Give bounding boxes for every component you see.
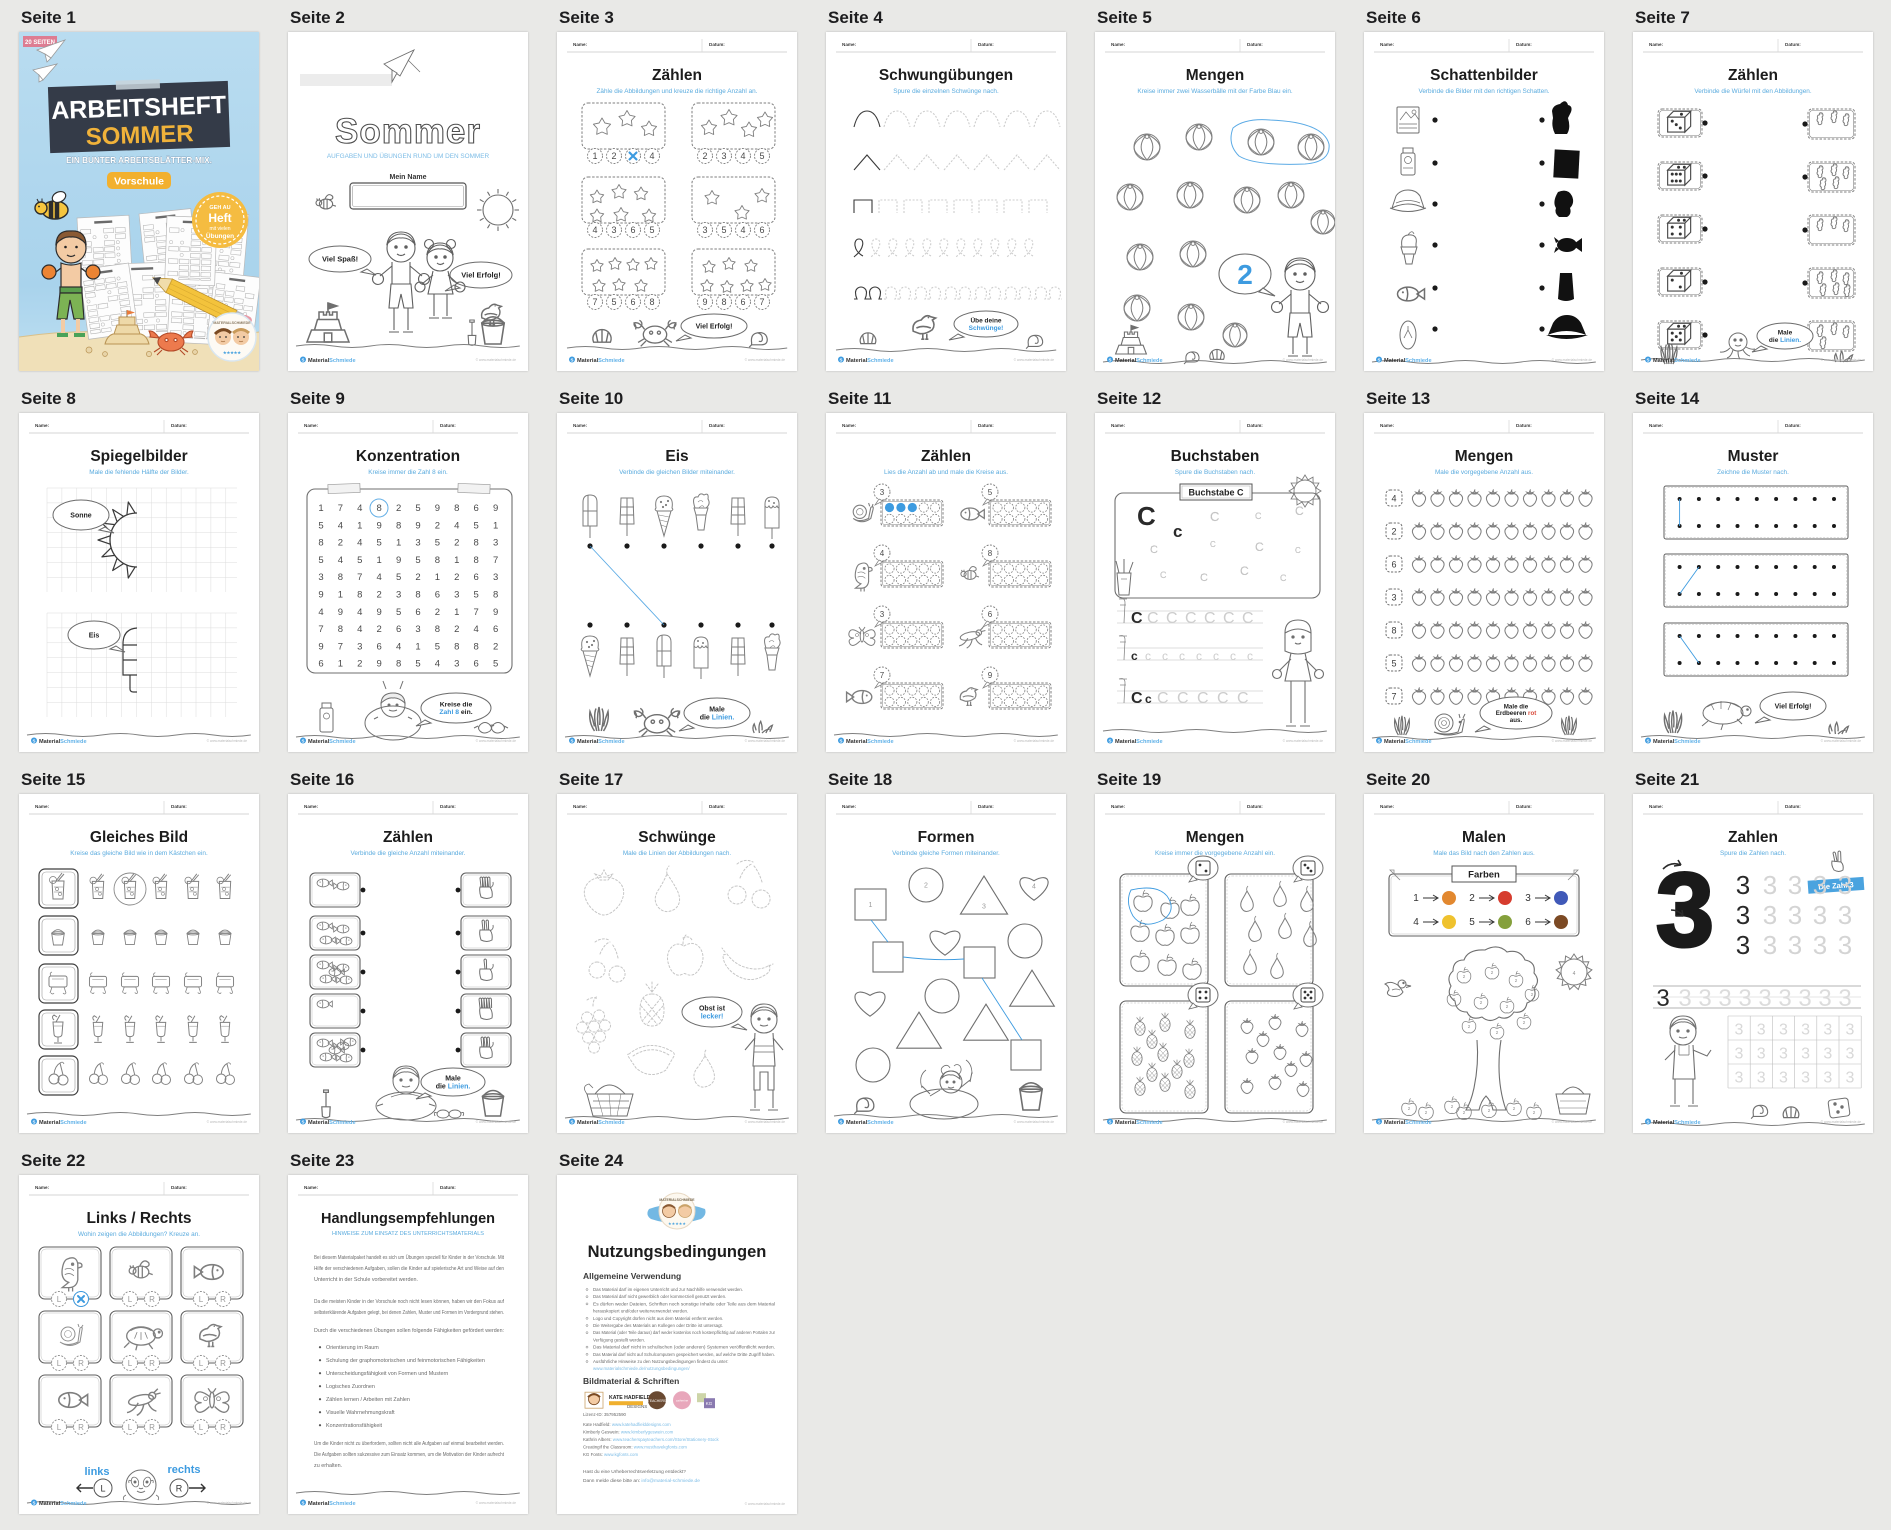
svg-text:2: 2: [357, 659, 362, 670]
svg-text:3: 3: [702, 225, 707, 235]
svg-text:Ausführliche Hinweise zu den N: Ausführliche Hinweise zu den Nutzungsbed…: [593, 1359, 728, 1364]
svg-text:1: 1: [338, 590, 343, 601]
svg-text:Das Material darf im eigenen U: Das Material darf im eigenen Unterricht …: [593, 1287, 743, 1292]
svg-text:8: 8: [338, 572, 343, 583]
svg-text:2: 2: [1531, 992, 1534, 997]
svg-text:© www.materialschmiede.de: © www.materialschmiede.de: [1014, 358, 1054, 362]
svg-text:S: S: [570, 1120, 573, 1125]
svg-text:Viel Erfolg!: Viel Erfolg!: [1775, 703, 1812, 710]
svg-text:KG: KG: [706, 1401, 713, 1406]
svg-text:4: 4: [338, 555, 343, 566]
svg-text:5: 5: [415, 659, 420, 670]
svg-text:3: 3: [1736, 870, 1750, 900]
svg-text:3: 3: [1698, 985, 1711, 1012]
svg-text:5: 5: [474, 590, 479, 601]
svg-text:Datum:: Datum:: [1516, 423, 1532, 428]
svg-text:7: 7: [338, 503, 343, 514]
svg-text:L: L: [199, 1423, 204, 1432]
svg-text:Spure die Zahlen nach.: Spure die Zahlen nach.: [1720, 850, 1786, 857]
svg-text:Verbinde gleiche Formen mitein: Verbinde gleiche Formen miteinander.: [892, 850, 1000, 857]
svg-text:7: 7: [474, 607, 479, 618]
svg-text:c: c: [1131, 649, 1138, 663]
svg-text:MaterialSchmiede: MaterialSchmiede: [39, 739, 87, 745]
svg-text:Durch die verschiedenen Übunge: Durch die verschiedenen Übungen sollen f…: [314, 1327, 504, 1334]
svg-text:6: 6: [630, 297, 635, 307]
svg-text:Unterscheidungsfähigkeit von F: Unterscheidungsfähigkeit von Formen und …: [326, 1371, 448, 1377]
svg-text:Name:: Name:: [842, 804, 857, 809]
svg-text:1: 1: [493, 520, 498, 531]
svg-text:5: 5: [435, 641, 440, 652]
svg-text:© www.materialschmiede.de: © www.materialschmiede.de: [476, 1501, 516, 1505]
svg-text:Name:: Name:: [1111, 42, 1126, 47]
svg-text:8: 8: [396, 659, 401, 670]
svg-text:Logisches Zuordnen: Logisches Zuordnen: [326, 1384, 375, 1390]
svg-text:7: 7: [357, 572, 362, 583]
svg-text:Name:: Name:: [1111, 423, 1126, 428]
svg-text:7: 7: [880, 671, 885, 680]
svg-text:3: 3: [1813, 870, 1827, 900]
svg-text:9: 9: [493, 607, 498, 618]
svg-text:C: C: [1255, 540, 1264, 554]
svg-text:1: 1: [415, 641, 420, 652]
svg-text:Datum:: Datum:: [709, 42, 725, 47]
svg-text:Übungen: Übungen: [206, 231, 234, 240]
svg-text:2: 2: [1469, 893, 1475, 904]
svg-text:2: 2: [1391, 527, 1396, 537]
svg-text:Schwünge: Schwünge: [638, 829, 716, 846]
svg-text:Name:: Name:: [842, 423, 857, 428]
svg-text:5: 5: [357, 555, 362, 566]
svg-text:2: 2: [1523, 1020, 1526, 1025]
svg-text:c: c: [1196, 649, 1202, 663]
svg-text:C: C: [1166, 610, 1178, 627]
svg-text:L: L: [128, 1359, 133, 1368]
svg-text:6: 6: [1525, 917, 1531, 928]
svg-text:Schwünge!: Schwünge!: [969, 325, 1004, 332]
svg-text:C: C: [1295, 546, 1301, 555]
svg-text:S: S: [570, 358, 573, 363]
svg-text:c: c: [1145, 649, 1151, 663]
svg-text:6: 6: [474, 503, 479, 514]
svg-text:C: C: [1160, 570, 1167, 580]
svg-text:Datum:: Datum:: [1785, 42, 1801, 47]
svg-text:Datum:: Datum:: [440, 1185, 456, 1190]
svg-text:3: 3: [454, 590, 459, 601]
svg-text:KATE HADFIELD: KATE HADFIELD: [609, 1395, 651, 1401]
svg-text:SOMMER: SOMMER: [85, 120, 194, 151]
svg-text:Verbinde die Würfel mit den Ab: Verbinde die Würfel mit den Abbildungen.: [1694, 88, 1811, 95]
svg-text:Datum:: Datum:: [1247, 42, 1263, 47]
svg-text:die Linien.: die Linien.: [700, 714, 735, 721]
svg-text:Schulung der graphomotorischen: Schulung der graphomotorischen und feinm…: [326, 1358, 485, 1364]
svg-text:Name:: Name:: [573, 423, 588, 428]
svg-text:Eis: Eis: [665, 448, 688, 465]
svg-text:MaterialSchmiede: MaterialSchmiede: [1653, 1120, 1701, 1126]
svg-text:3: 3: [1823, 1022, 1832, 1039]
svg-text:Kreise das gleiche Bild wie in: Kreise das gleiche Bild wie in dem Kästc…: [70, 850, 208, 857]
svg-text:Unterricht in der Schule vorbe: Unterricht in der Schule vorbereitet wer…: [314, 1277, 418, 1283]
svg-text:S: S: [1377, 1120, 1380, 1125]
svg-text:Datum:: Datum:: [1785, 423, 1801, 428]
svg-text:4: 4: [649, 151, 654, 161]
svg-text:Kimberly Geswein: www.kimberly: Kimberly Geswein: www.kimberlygeswein.co…: [583, 1430, 674, 1435]
svg-text:4: 4: [357, 607, 362, 618]
svg-text:3: 3: [1779, 1070, 1788, 1087]
svg-text:3: 3: [1846, 1022, 1855, 1039]
svg-text:3: 3: [1525, 893, 1531, 904]
svg-text:6: 6: [493, 624, 498, 635]
svg-text:Name:: Name:: [842, 42, 857, 47]
svg-text:S: S: [301, 358, 304, 363]
svg-text:6: 6: [740, 297, 745, 307]
svg-text:Es dürfen weder Dateien, Schri: Es dürfen weder Dateien, Schriften noch …: [593, 1301, 775, 1306]
svg-text:Handlungsempfehlungen: Handlungsempfehlungen: [321, 1211, 495, 1227]
svg-text:3: 3: [1801, 1046, 1810, 1063]
svg-text:Name:: Name:: [35, 1185, 50, 1190]
svg-text:Lies die Anzahl ab und male di: Lies die Anzahl ab und male die Kreise a…: [884, 469, 1008, 476]
svg-text:Zähle die Abbildungen und kreu: Zähle die Abbildungen und kreuze die ric…: [597, 88, 758, 95]
svg-text:4: 4: [1573, 971, 1576, 977]
svg-text:2: 2: [1515, 978, 1518, 983]
svg-text:3: 3: [1738, 985, 1751, 1012]
svg-text:9: 9: [338, 607, 343, 618]
svg-text:5: 5: [415, 503, 420, 514]
svg-text:5: 5: [721, 225, 726, 235]
svg-text:aus.: aus.: [1510, 717, 1523, 724]
svg-text:5: 5: [377, 538, 382, 549]
svg-text:© www.materialschmiede.de: © www.materialschmiede.de: [1552, 739, 1592, 743]
svg-text:2: 2: [1463, 1110, 1466, 1115]
svg-text:Kathrin Albers: www.teacherspa: Kathrin Albers: www.teacherspayteachers.…: [583, 1437, 719, 1442]
svg-text:4: 4: [357, 538, 362, 549]
svg-text:die Linien.: die Linien.: [1769, 337, 1801, 344]
svg-text:4: 4: [357, 503, 362, 514]
svg-text:© www.materialschmiede.de: © www.materialschmiede.de: [1821, 739, 1861, 743]
svg-text:mit vielen: mit vielen: [209, 226, 230, 232]
svg-text:9: 9: [377, 607, 382, 618]
svg-text:3: 3: [880, 610, 885, 619]
svg-text:Mengen: Mengen: [1455, 448, 1514, 465]
svg-text:8: 8: [454, 641, 459, 652]
svg-text:MaterialSchmiede: MaterialSchmiede: [39, 1501, 87, 1507]
svg-text:Konzentration: Konzentration: [356, 448, 460, 465]
svg-text:Datum:: Datum:: [1516, 804, 1532, 809]
svg-text:MaterialSchmiede: MaterialSchmiede: [308, 739, 356, 745]
svg-text:S: S: [32, 1501, 35, 1506]
svg-text:© www.materialschmiede.de: © www.materialschmiede.de: [1283, 1120, 1323, 1124]
svg-text:★★★★★: ★★★★★: [668, 1221, 686, 1226]
svg-text:L: L: [57, 1295, 62, 1304]
svg-text:5: 5: [1469, 917, 1475, 928]
svg-text:C: C: [1280, 573, 1287, 583]
svg-text:3: 3: [1757, 1022, 1766, 1039]
svg-text:2: 2: [415, 572, 420, 583]
svg-text:MATERIALSCHMIEDE: MATERIALSCHMIEDE: [659, 1198, 695, 1202]
svg-text:3: 3: [1846, 1046, 1855, 1063]
svg-text:4: 4: [377, 572, 382, 583]
svg-text:Hast du eine Urheberrechtsverl: Hast du eine Urheberrechtsverletzung ent…: [583, 1469, 686, 1475]
svg-text:MaterialSchmiede: MaterialSchmiede: [1115, 739, 1163, 745]
svg-text:Kreise immer zwei Wasserbälle: Kreise immer zwei Wasserbälle mit der Fa…: [1137, 88, 1293, 95]
svg-text:L: L: [128, 1295, 133, 1304]
svg-text:9: 9: [396, 555, 401, 566]
svg-text:Name:: Name:: [304, 423, 319, 428]
svg-text:6: 6: [377, 641, 382, 652]
svg-text:Datum:: Datum:: [171, 1185, 187, 1190]
svg-text:S: S: [1646, 1120, 1649, 1125]
svg-text:5: 5: [396, 607, 401, 618]
svg-text:Mengen: Mengen: [1186, 829, 1245, 846]
svg-text:Viel Erfolg!: Viel Erfolg!: [461, 271, 500, 280]
svg-text:zu erhalten.: zu erhalten.: [314, 1463, 342, 1469]
svg-text:3: 3: [1757, 1070, 1766, 1087]
svg-text:S: S: [839, 358, 842, 363]
svg-text:Wohin zeigen die Abbildungen?: Wohin zeigen die Abbildungen? Kreuze an.: [78, 1231, 200, 1238]
svg-text:catherine: catherine: [676, 1399, 689, 1403]
svg-text:Name:: Name:: [1649, 42, 1664, 47]
svg-text:Name:: Name:: [304, 804, 319, 809]
svg-text:Name:: Name:: [573, 42, 588, 47]
svg-text:2: 2: [1468, 1024, 1471, 1029]
svg-text:EIN BUNTER ARBEITSBLÄTTER-MIX.: EIN BUNTER ARBEITSBLÄTTER-MIX.: [66, 155, 212, 165]
svg-text:C: C: [1200, 572, 1208, 584]
svg-text:4: 4: [880, 549, 885, 558]
svg-text:R: R: [78, 1359, 84, 1368]
svg-text:links: links: [84, 1466, 109, 1478]
svg-text:5: 5: [649, 225, 654, 235]
svg-text:2: 2: [396, 503, 401, 514]
svg-text:8: 8: [988, 549, 993, 558]
svg-text:1: 1: [377, 555, 382, 566]
svg-text:L: L: [57, 1359, 62, 1368]
svg-text:© www.materialschmiede.de: © www.materialschmiede.de: [1821, 1120, 1861, 1124]
svg-text:Buchstabe C: Buchstabe C: [1188, 488, 1244, 498]
svg-text:Gleiches Bild: Gleiches Bild: [90, 829, 188, 846]
svg-text:1: 1: [396, 538, 401, 549]
svg-text:S: S: [1646, 739, 1649, 744]
svg-text:2: 2: [1491, 970, 1494, 975]
svg-text:C: C: [1137, 501, 1156, 531]
svg-text:5: 5: [415, 555, 420, 566]
svg-text:Datum:: Datum:: [1785, 804, 1801, 809]
svg-text:3: 3: [1788, 900, 1802, 930]
svg-text:8: 8: [1391, 626, 1396, 636]
svg-text:Male das Bild nach den Zahlen: Male das Bild nach den Zahlen aus.: [1433, 850, 1535, 857]
svg-text:© www.materialschmiede.de: © www.materialschmiede.de: [1283, 739, 1323, 743]
svg-text:4: 4: [740, 225, 745, 235]
svg-text:3: 3: [1656, 852, 1714, 969]
svg-text:selbsterklärende Aufgaben gele: selbsterklärende Aufgaben gelegt, bei de…: [314, 1310, 504, 1316]
svg-text:S: S: [839, 739, 842, 744]
svg-text:Schwungübungen: Schwungübungen: [879, 67, 1013, 84]
svg-text:3: 3: [415, 624, 420, 635]
svg-text:© www.materialschmiede.de: © www.materialschmiede.de: [1014, 739, 1054, 743]
svg-text:C: C: [1157, 690, 1169, 707]
svg-text:Dann melde diese bitte an: inf: Dann melde diese bitte an: info@material…: [583, 1478, 700, 1484]
svg-text:5: 5: [493, 659, 498, 670]
svg-text:Spiegelbilder: Spiegelbilder: [90, 448, 187, 465]
svg-text:3: 3: [1757, 1046, 1766, 1063]
svg-text:2: 2: [1480, 1000, 1483, 1005]
svg-text:2: 2: [454, 624, 459, 635]
svg-text:3: 3: [1838, 870, 1852, 900]
svg-text:Zahlen: Zahlen: [1728, 829, 1778, 846]
svg-text:Da die meisten Kinder in der V: Da die meisten Kinder in der Vorschule n…: [314, 1299, 504, 1305]
svg-text:3: 3: [1798, 985, 1811, 1012]
svg-text:7: 7: [318, 624, 323, 635]
svg-text:Die Aufgaben sollten sukzessiv: Die Aufgaben sollten sukzessive zum Eins…: [314, 1452, 504, 1458]
svg-text:6: 6: [474, 572, 479, 583]
svg-text:Male: Male: [1778, 330, 1793, 337]
svg-text:MaterialSchmiede: MaterialSchmiede: [1384, 739, 1432, 745]
svg-text:2: 2: [1496, 1030, 1499, 1035]
svg-text:Sonne: Sonne: [70, 513, 91, 520]
svg-text:© www.materialschmiede.de: © www.materialschmiede.de: [207, 1120, 247, 1124]
svg-text:Buchstaben: Buchstaben: [1171, 448, 1260, 465]
svg-text:MaterialSchmiede: MaterialSchmiede: [1653, 358, 1701, 364]
svg-text:Spure die Buchstaben nach.: Spure die Buchstaben nach.: [1175, 469, 1256, 476]
svg-text:Datum:: Datum:: [171, 423, 187, 428]
svg-text:S: S: [1377, 739, 1380, 744]
svg-text:Bildmaterial & Schriften: Bildmaterial & Schriften: [583, 1376, 679, 1386]
svg-text:AUFGABEN UND ÜBUNGEN RUND UM D: AUFGABEN UND ÜBUNGEN RUND UM DEN SOMMER: [327, 152, 490, 160]
svg-text:Orientierung im Raum: Orientierung im Raum: [326, 1345, 379, 1351]
svg-text:6: 6: [318, 659, 323, 670]
svg-text:MaterialSchmiede: MaterialSchmiede: [577, 358, 625, 364]
svg-text:Obst ist: Obst ist: [699, 1006, 726, 1013]
svg-text:Sommer: Sommer: [335, 112, 481, 151]
svg-text:Zählen: Zählen: [652, 67, 702, 84]
svg-text:1: 1: [1413, 893, 1419, 904]
svg-text:6: 6: [474, 659, 479, 670]
svg-text:2: 2: [1425, 1110, 1428, 1115]
svg-text:Datum:: Datum:: [171, 804, 187, 809]
svg-text:MaterialSchmiede: MaterialSchmiede: [1384, 1120, 1432, 1126]
svg-text:c: c: [1162, 649, 1168, 663]
svg-text:4: 4: [435, 659, 440, 670]
svg-text:© www.materialschmiede.de: © www.materialschmiede.de: [1552, 358, 1592, 362]
svg-text:R: R: [78, 1423, 84, 1432]
svg-text:Um die Kinder nicht zu überfor: Um die Kinder nicht zu überfordern, soll…: [314, 1441, 504, 1447]
svg-text:4: 4: [592, 225, 597, 235]
svg-text:MATERIALSCHMIEDE: MATERIALSCHMIEDE: [213, 321, 251, 325]
svg-text:8: 8: [649, 297, 654, 307]
svg-text:Kreise die: Kreise die: [440, 702, 473, 709]
svg-text:3: 3: [1678, 985, 1691, 1012]
svg-text:Male die vorgegebene Anzahl au: Male die vorgegebene Anzahl aus.: [1435, 469, 1533, 476]
svg-text:© www.materialschmiede.de: © www.materialschmiede.de: [745, 358, 785, 362]
svg-text:8: 8: [474, 538, 479, 549]
svg-text:3: 3: [1801, 1022, 1810, 1039]
svg-text:9: 9: [702, 297, 707, 307]
svg-text:2: 2: [1506, 1004, 1509, 1009]
svg-text:3: 3: [357, 641, 362, 652]
svg-text:C: C: [1147, 610, 1159, 627]
svg-text:Name:: Name:: [573, 804, 588, 809]
svg-text:4: 4: [474, 624, 479, 635]
svg-text:herauskopiert und/oder weiterv: herauskopiert und/oder weiterverwendet w…: [593, 1309, 688, 1314]
svg-text:C: C: [1223, 610, 1235, 627]
svg-text:C: C: [1177, 690, 1189, 707]
svg-text:7: 7: [592, 297, 597, 307]
svg-text:6: 6: [435, 590, 440, 601]
svg-text:5: 5: [1391, 659, 1396, 669]
svg-text:c: c: [1173, 522, 1182, 541]
svg-text:3: 3: [415, 538, 420, 549]
svg-text:2: 2: [454, 572, 459, 583]
svg-text:Datum:: Datum:: [709, 423, 725, 428]
svg-text:C: C: [1255, 511, 1262, 521]
svg-text:L: L: [128, 1423, 133, 1432]
svg-text:3: 3: [1838, 900, 1852, 930]
svg-text:Zählen: Zählen: [921, 448, 971, 465]
svg-text:C: C: [1131, 610, 1143, 627]
svg-text:8: 8: [474, 555, 479, 566]
svg-text:3: 3: [721, 151, 726, 161]
svg-text:3: 3: [1779, 1046, 1788, 1063]
svg-text:5: 5: [611, 297, 616, 307]
svg-text:C: C: [1237, 690, 1249, 707]
svg-text:Visuelle Wahrnehmungskraft: Visuelle Wahrnehmungskraft: [326, 1410, 395, 1416]
svg-text:1: 1: [454, 555, 459, 566]
svg-text:www.materialschmiede.de/nutzun: www.materialschmiede.de/nutzungsbedingun…: [593, 1366, 690, 1371]
svg-text:rechts: rechts: [167, 1464, 200, 1476]
svg-text:3: 3: [1838, 985, 1851, 1012]
svg-text:C: C: [1295, 504, 1304, 518]
svg-text:3: 3: [1718, 985, 1731, 1012]
svg-text:Datum:: Datum:: [1516, 42, 1532, 47]
svg-text:3: 3: [1763, 930, 1777, 960]
svg-text:8: 8: [493, 590, 498, 601]
svg-text:Eis: Eis: [89, 632, 100, 639]
svg-text:Allgemeine Verwendung: Allgemeine Verwendung: [583, 1271, 681, 1281]
svg-text:9: 9: [415, 520, 420, 531]
svg-text:Vorschule: Vorschule: [114, 176, 164, 188]
svg-text:Bei diesem Materialpaket hande: Bei diesem Materialpaket handelt es sich…: [314, 1254, 504, 1261]
svg-text:4: 4: [338, 520, 343, 531]
svg-text:5: 5: [988, 488, 993, 497]
svg-text:3: 3: [1818, 985, 1831, 1012]
svg-text:3: 3: [1763, 900, 1777, 930]
svg-text:Das Material darf nicht gewerb: Das Material darf nicht gewerblich oder …: [593, 1294, 726, 1299]
svg-text:HINWEISE ZUM EINSATZ DES UNTER: HINWEISE ZUM EINSATZ DES UNTERRICHTSMATE…: [332, 1231, 484, 1237]
svg-text:MaterialSchmiede: MaterialSchmiede: [577, 739, 625, 745]
svg-text:3: 3: [454, 659, 459, 670]
svg-text:© www.materialschmiede.de: © www.materialschmiede.de: [1821, 358, 1861, 362]
svg-text:7: 7: [1391, 692, 1396, 702]
svg-text:Zählen: Zählen: [383, 829, 433, 846]
svg-text:2: 2: [1513, 1106, 1516, 1111]
svg-text:© www.materialschmiede.de: © www.materialschmiede.de: [1014, 1120, 1054, 1124]
svg-text:S: S: [1646, 358, 1649, 363]
svg-text:S: S: [1108, 1120, 1111, 1125]
svg-text:Datum:: Datum:: [440, 423, 456, 428]
svg-text:2: 2: [1463, 974, 1466, 979]
svg-text:Heft: Heft: [208, 211, 231, 225]
svg-text:C: C: [1217, 690, 1229, 707]
svg-text:© www.materialschmiede.de: © www.materialschmiede.de: [476, 1120, 516, 1124]
svg-text:Konzentrationsfähigkeit: Konzentrationsfähigkeit: [326, 1423, 383, 1429]
svg-text:Name:: Name:: [35, 804, 50, 809]
svg-text:Datum:: Datum:: [440, 804, 456, 809]
svg-text:c: c: [1179, 649, 1185, 663]
svg-text:Datum:: Datum:: [978, 423, 994, 428]
svg-text:4: 4: [1413, 917, 1419, 928]
svg-text:4: 4: [396, 641, 401, 652]
svg-text:9: 9: [435, 503, 440, 514]
svg-text:Die Weitergabe des Materials a: Die Weitergabe des Materials an Kollegen…: [593, 1323, 723, 1328]
svg-text:C: C: [1150, 544, 1158, 556]
